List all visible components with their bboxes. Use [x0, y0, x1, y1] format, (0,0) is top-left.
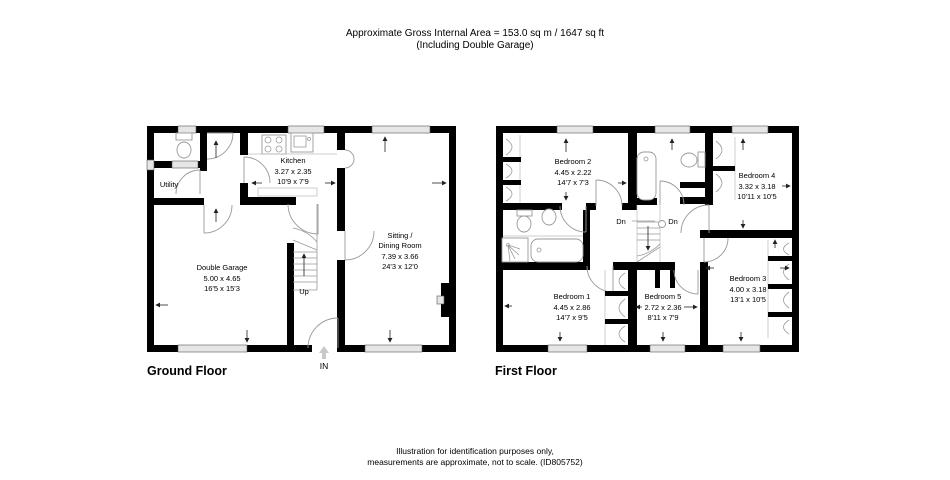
- room-dims-kitchen-metric: 3.27 x 2.35: [274, 167, 311, 176]
- room-dims-bedroom2-imperial: 14'7 x 7'3: [557, 178, 589, 187]
- toilet-bowl: [177, 142, 191, 158]
- stairs-up-label: Up: [299, 287, 309, 296]
- room-label-bedroom5: Bedroom 5: [645, 292, 682, 301]
- stair-newel-post: [659, 221, 666, 228]
- room-label-bedroom3: Bedroom 3: [730, 274, 767, 283]
- room-dims-bedroom1-metric: 4.45 x 2.86: [553, 303, 590, 312]
- room-dims-bedroom3-metric: 4.00 x 3.18: [729, 285, 766, 294]
- room-dims-bedroom5-metric: 2.72 x 2.36: [644, 303, 681, 312]
- toilet-bowl: [517, 216, 531, 232]
- gf-entrance: [319, 346, 329, 359]
- toilet-cistern: [517, 210, 532, 216]
- first-floor-plan: Bedroom 2 4.45 x 2.22 14'7 x 7'3 Bedroom…: [495, 126, 799, 378]
- kitchen-counter: [258, 188, 317, 196]
- entrance-in-label: IN: [320, 361, 329, 371]
- room-dims-garage-imperial: 16'5 x 15'3: [204, 284, 240, 293]
- disclaimer-line1: Illustration for identification purposes…: [0, 446, 950, 457]
- gf-stairs: [293, 204, 317, 290]
- fireplace-recess: [437, 296, 444, 304]
- room-dims-bedroom3-imperial: 13'1 x 10'5: [730, 295, 766, 304]
- room-label-garage: Double Garage: [197, 263, 248, 272]
- entrance-arrow-icon: [319, 346, 329, 353]
- plan-footer: Illustration for identification purposes…: [0, 446, 950, 468]
- room-label-kitchen: Kitchen: [280, 156, 305, 165]
- room-dims-bedroom5-imperial: 8'11 x 7'9: [647, 313, 678, 322]
- stairs-dn-right-label: Dn: [668, 217, 678, 226]
- room-label-sitting-line2: Dining Room: [378, 241, 421, 250]
- room-dims-sitting-metric: 7.39 x 3.66: [381, 252, 418, 261]
- room-dims-garage-metric: 5.00 x 4.65: [203, 274, 240, 283]
- room-dims-bedroom1-imperial: 14'7 x 9'5: [556, 313, 588, 322]
- ff-stairs: [632, 205, 666, 262]
- ground-floor-plan: Utility Kitchen 3.27 x 2.35 10'9 x 7'9 D…: [147, 126, 456, 378]
- toilet-cistern: [176, 133, 192, 140]
- bathtub: [637, 152, 656, 200]
- room-label-sitting-line1: Sitting /: [387, 231, 413, 240]
- room-dims-bedroom2-metric: 4.45 x 2.22: [554, 168, 591, 177]
- room-dims-bedroom4-metric: 3.32 x 3.18: [738, 182, 775, 191]
- floorplan-page: Approximate Gross Internal Area = 153.0 …: [0, 0, 950, 480]
- room-dims-bedroom4-imperial: 10'11 x 10'5: [737, 192, 776, 201]
- room-label-bedroom2: Bedroom 2: [555, 157, 592, 166]
- room-label-bedroom4: Bedroom 4: [739, 171, 776, 180]
- closet-divider: [655, 270, 660, 288]
- room-dims-kitchen-imperial: 10'9 x 7'9: [277, 177, 309, 186]
- toilet-cistern: [698, 152, 705, 167]
- disclaimer-line2: measurements are approximate, not to sca…: [0, 457, 950, 468]
- basin: [542, 209, 556, 225]
- bathtub: [531, 239, 583, 262]
- garage-door-opening: [178, 345, 247, 352]
- stairs-dn-left-label: Dn: [616, 217, 626, 226]
- toilet-bowl: [681, 153, 697, 167]
- floorplan-canvas: Utility Kitchen 3.27 x 2.35 10'9 x 7'9 D…: [0, 0, 950, 480]
- room-label-utility: Utility: [160, 180, 179, 189]
- ground-floor-title: Ground Floor: [147, 364, 227, 378]
- room-label-bedroom1: Bedroom 1: [554, 292, 591, 301]
- room-dims-sitting-imperial: 24'3 x 12'0: [382, 262, 418, 271]
- first-floor-title: First Floor: [495, 364, 557, 378]
- airing-cupboard-shelf: [680, 182, 705, 188]
